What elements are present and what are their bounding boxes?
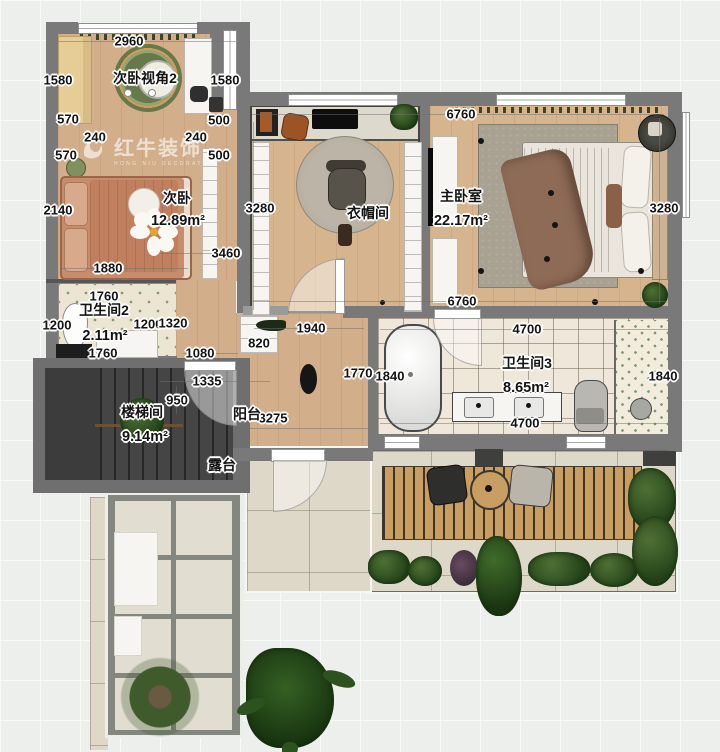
- dim: 570: [55, 148, 77, 163]
- dim: 1840: [649, 369, 678, 384]
- dim: 1335: [193, 374, 222, 389]
- dim: 1580: [44, 73, 73, 88]
- dim: 1880: [94, 261, 123, 276]
- dim: 1770: [344, 366, 373, 381]
- room-label: 次卧视角2: [113, 68, 177, 88]
- dim: 570: [57, 112, 79, 127]
- dim: 2960: [115, 34, 144, 49]
- room-area: 12.89m²: [151, 213, 205, 229]
- dim: 950: [166, 393, 188, 408]
- dim: 1080: [186, 346, 215, 361]
- dim: 6760: [447, 107, 476, 122]
- room-label: 露台: [208, 455, 236, 475]
- room-label: 次卧: [163, 188, 191, 208]
- dim: 2140: [44, 203, 73, 218]
- dim: 820: [248, 336, 270, 351]
- dim: 4700: [513, 322, 542, 337]
- dim: 3280: [246, 201, 275, 216]
- room-label: 衣帽间: [347, 203, 389, 223]
- dim: 6760: [448, 294, 477, 309]
- dim: 1320: [159, 316, 188, 331]
- room-label: 阳台: [233, 404, 261, 424]
- dim: 3275: [259, 411, 288, 426]
- brand-logo-icon: [80, 136, 108, 169]
- dim: 500: [208, 113, 230, 128]
- labels-layer: 2960158015805705002402405705002140346018…: [0, 0, 720, 752]
- brand-name: 红牛装饰: [114, 139, 219, 159]
- dim: 1840: [376, 369, 405, 384]
- room-label: 楼梯间: [121, 402, 163, 422]
- dim: 4700: [511, 416, 540, 431]
- room-label: 卫生间3: [502, 353, 552, 373]
- room-label: 卫生间2: [79, 300, 129, 320]
- dim: 3280: [650, 201, 679, 216]
- room-area: 8.65m²: [503, 380, 549, 396]
- room-area: 22.17m²: [434, 213, 488, 229]
- watermark: 红牛装饰 HONG NIU DECORATION: [80, 136, 219, 169]
- room-area: 9.14m²: [122, 429, 168, 445]
- dim: 1940: [297, 321, 326, 336]
- dim: 3460: [212, 246, 241, 261]
- brand-subtitle: HONG NIU DECORATION: [114, 161, 219, 167]
- dim: 1580: [211, 73, 240, 88]
- floor-plan: 2960158015805705002402405705002140346018…: [0, 0, 720, 752]
- dim: 1760: [89, 346, 118, 361]
- room-area: 2.11m²: [82, 328, 127, 344]
- dim: 1200: [43, 318, 72, 333]
- room-label: 主卧室: [440, 186, 482, 206]
